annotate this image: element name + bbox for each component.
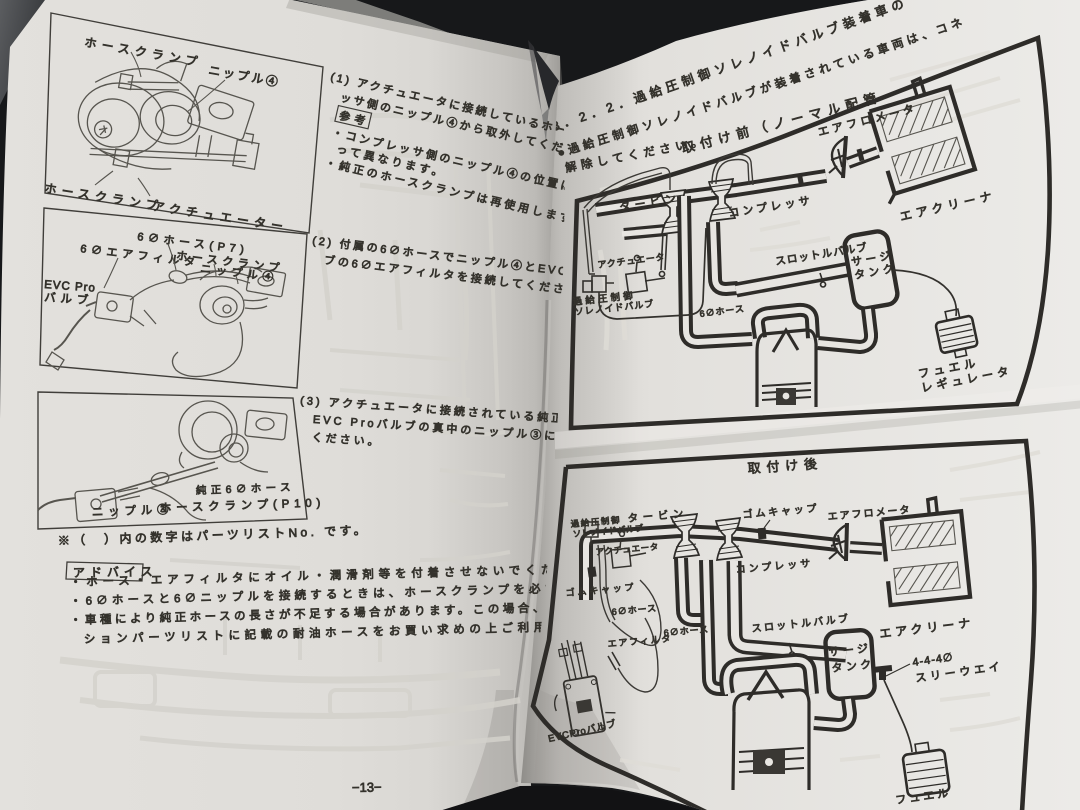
svg-text:−13−: −13− (352, 779, 382, 795)
